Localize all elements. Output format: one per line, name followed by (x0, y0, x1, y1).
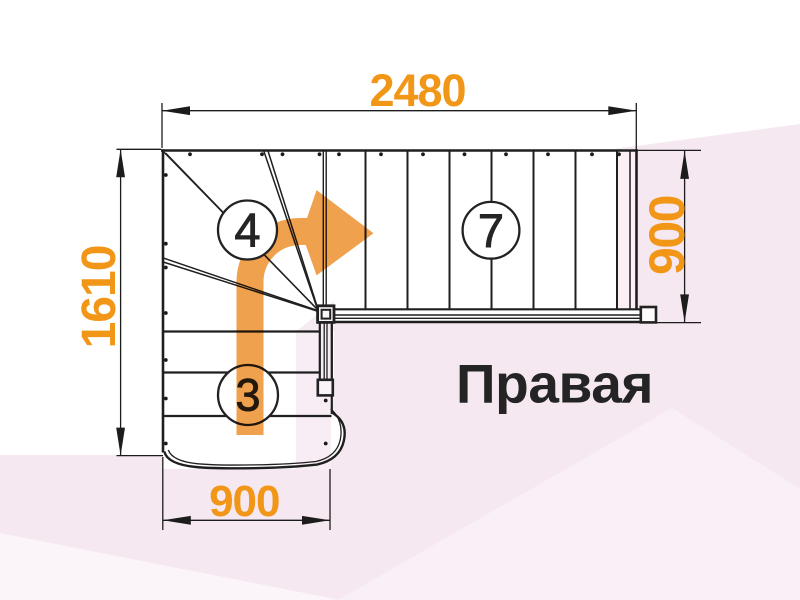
svg-text:4: 4 (234, 204, 260, 257)
svg-text:900: 900 (209, 477, 279, 526)
svg-text:Правая: Правая (456, 353, 653, 415)
svg-text:2480: 2480 (369, 65, 465, 116)
svg-text:7: 7 (478, 204, 504, 257)
svg-text:1610: 1610 (73, 246, 126, 349)
svg-text:900: 900 (639, 196, 695, 275)
